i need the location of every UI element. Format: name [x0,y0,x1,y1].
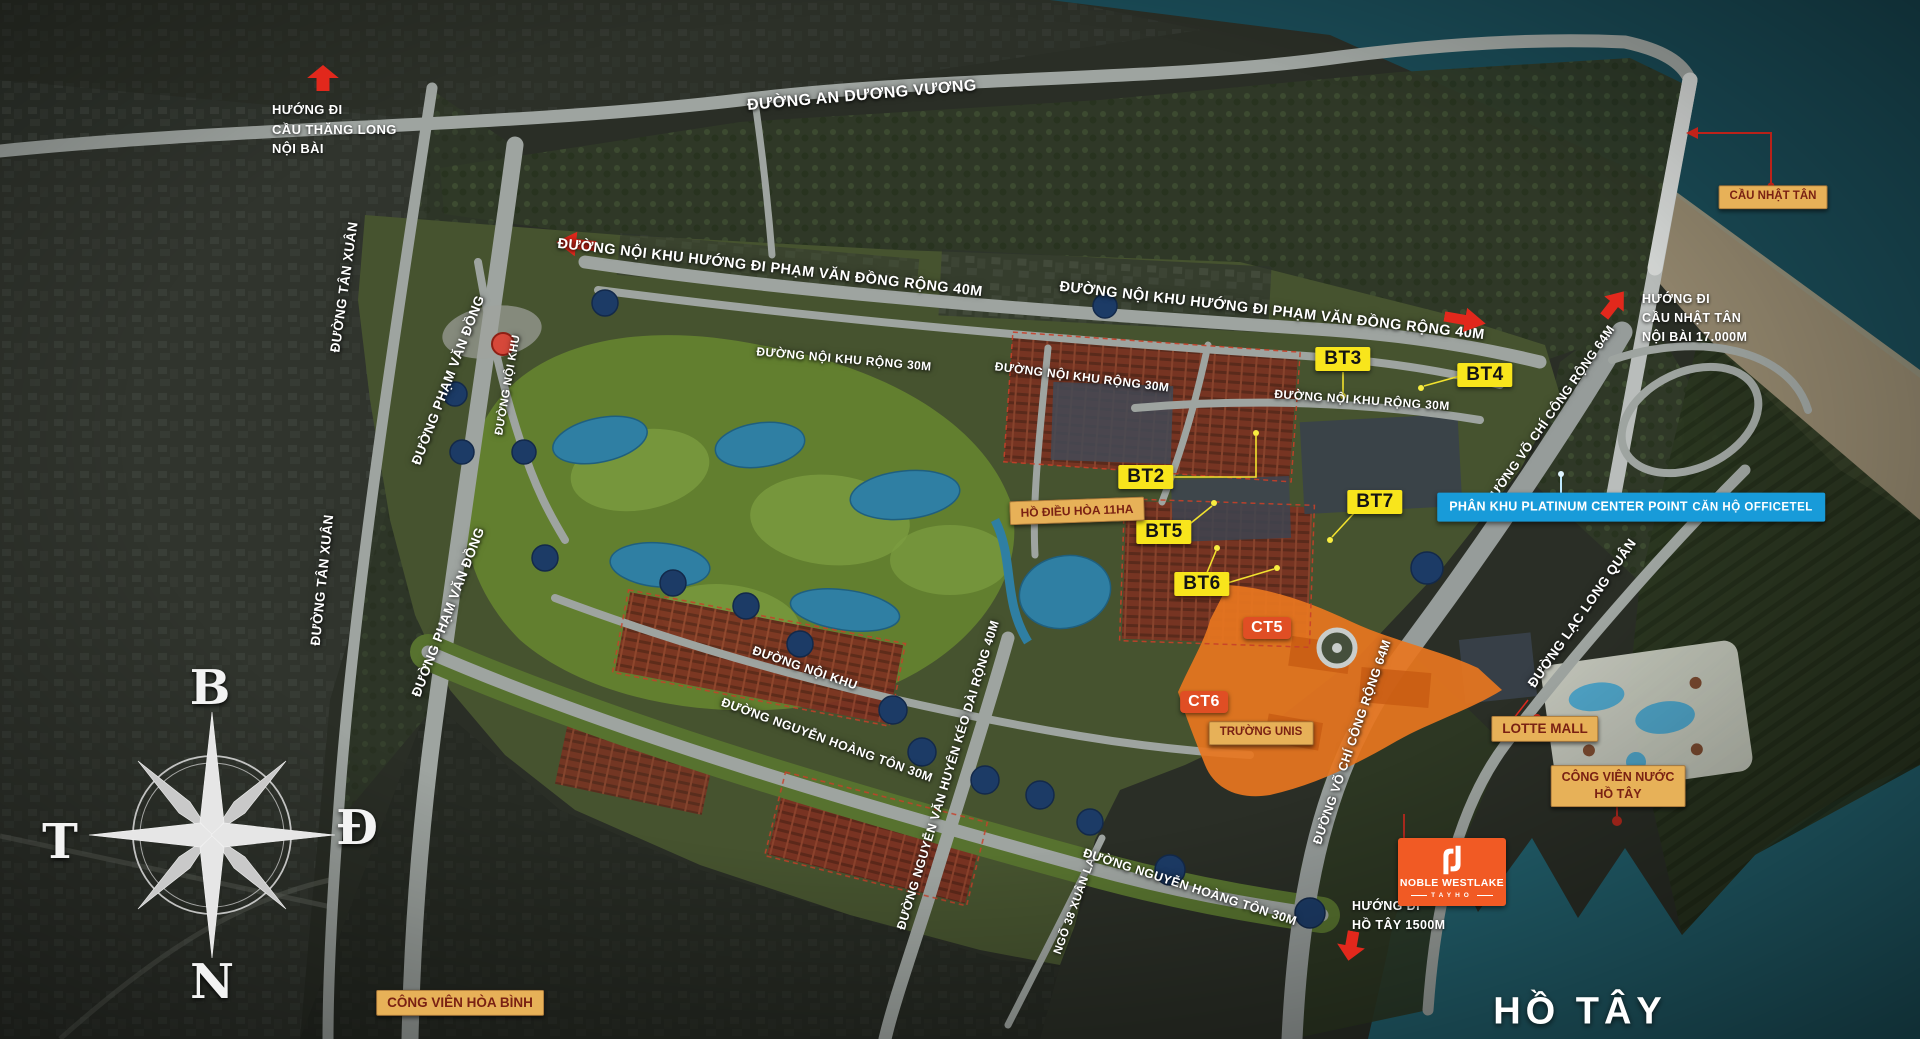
badge-cong-vien-hoa-binh: CÔNG VIÊN HÒA BÌNH [376,990,544,1016]
plot-badge-bt6: BT6 [1174,572,1229,596]
plot-badge-bt3: BT3 [1315,347,1370,371]
compass-north-label: B [190,660,231,716]
plot-badge-ct6: CT6 [1180,691,1228,713]
compass-west-label: T [42,814,78,870]
noble-brand-name: NOBLE WESTLAKE [1400,877,1504,889]
plot-badge-bt4: BT4 [1457,363,1512,387]
ho-tay-lake-label: HỒ TÂY [1493,991,1667,1034]
plot-badge-bt7: BT7 [1347,490,1402,514]
noble-sub-name: TAYHO [1407,892,1497,899]
badge-truong-unis: TRƯỜNG UNIS [1209,721,1314,745]
compass-rose: B Đ N T [30,652,370,1039]
badge-cau-nhat-tan: CẦU NHẬT TÂN [1719,185,1828,209]
compass-south-label: N [190,954,234,1010]
direction-note-thang-long: HƯỚNG ĐI CẦU THĂNG LONG NỘI BÀI [272,100,397,159]
badge-cong-vien-nuoc: CÔNG VIÊN NƯỚC HỒ TÂY [1551,765,1686,807]
badge-ho-dieu-hoa: HỒ ĐIỀU HÒA 11HA [1009,497,1145,526]
badge-platinum-center-point: PHÂN KHU PLATINUM CENTER POINT CĂN HỘ OF… [1437,493,1825,522]
plot-badge-bt5: BT5 [1136,520,1191,544]
compass-east-label: Đ [336,800,378,856]
direction-note-nhat-tan: HƯỚNG ĐI CẦU NHẬT TÂN NỘI BÀI 17.000M [1642,290,1747,346]
noble-westlake-logo: NOBLE WESTLAKE TAYHO [1398,838,1506,906]
plot-badge-ct5: CT5 [1243,617,1291,639]
masterplan-map: HƯỚNG ĐI CẦU THĂNG LONG NỘI BÀI HƯỚNG ĐI… [0,0,1920,1039]
badge-lotte-mall: LOTTE MALL [1491,716,1598,742]
noble-monogram-icon [1437,845,1467,875]
plot-badge-bt2: BT2 [1118,465,1173,489]
